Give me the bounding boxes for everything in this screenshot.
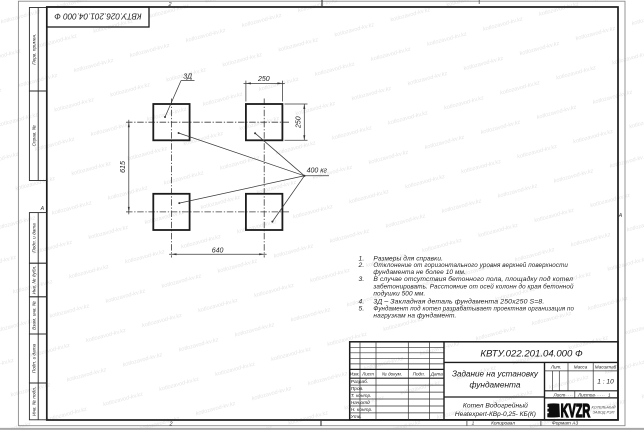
svg-text:Фундамент под котел разрабатыв: Фундамент под котел разрабатывает проект… [373,304,574,312]
svg-text:Подп.: Подп. [413,372,425,377]
svg-text:Взам. инв. №: Взам. инв. № [32,301,37,330]
svg-text:Формат А3: Формат А3 [552,421,579,427]
svg-text:Копировал: Копировал [491,421,515,427]
svg-text:1: 1 [472,421,475,427]
svg-text:А: А [618,213,623,219]
svg-text:Масса: Масса [574,365,588,370]
svg-text:КВТУ.022.201.04.000 Ф: КВТУ.022.201.04.000 Ф [480,348,583,359]
svg-text:Листов: Листов [577,392,595,397]
svg-text:Подп. и дата: Подп. и дата [32,223,37,253]
svg-text:Подп. и дата: Подп. и дата [32,343,37,373]
svg-text:400 кг: 400 кг [307,168,328,175]
svg-text:Разраб.: Разраб. [351,379,368,385]
svg-text:3.: 3. [359,276,365,283]
svg-text:ЗАВОД РЭП: ЗАВОД РЭП [593,410,615,414]
svg-text:Лист: Лист [553,392,566,397]
svg-text:3Д: 3Д [183,73,192,80]
svg-text:забетонировать. Расстояние от: забетонировать. Расстояние от осей колон… [372,282,573,290]
svg-text:5.: 5. [359,305,365,312]
svg-text:В случае отсутствия бетонного: В случае отсутствия бетонного пола, площ… [373,275,573,283]
svg-text:250: 250 [257,76,270,83]
svg-text:Heatexpert-КВр-0,25- КБ(К): Heatexpert-КВр-0,25- КБ(К) [455,411,536,418]
svg-text:Масштаб: Масштаб [595,365,617,370]
svg-text:615: 615 [120,161,127,173]
svg-text:4.: 4. [359,298,365,305]
svg-text:640: 640 [212,247,224,254]
svg-text:Т. контр.: Т. контр. [351,393,372,399]
svg-text:Перв. примен.: Перв. примен. [32,34,37,65]
svg-text:250: 250 [295,116,302,129]
svg-text:нагрузкам на фундамент.: нагрузкам на фундамент. [373,311,456,319]
svg-text:2.: 2. [358,262,365,269]
svg-text:Нач.отд: Нач.отд [351,400,370,406]
svg-text:2: 2 [167,2,171,8]
svg-text:KVZR: KVZR [561,400,591,421]
svg-text:2: 2 [168,422,172,428]
svg-text:Котел Водогрейный: Котел Водогрейный [463,402,529,410]
svg-text:КВТУ.026.201.04.000 Ф: КВТУ.026.201.04.000 Ф [54,11,142,20]
svg-text:3Д – Закладная деталь фундамен: 3Д – Закладная деталь фундамента 250х250… [373,297,544,305]
svg-text:Размеры для справки.: Размеры для справки. [373,254,443,262]
svg-text:№ докум.: № докум. [382,372,402,377]
svg-text:Лист: Лист [361,372,374,377]
svg-text:Пров.: Пров. [351,386,364,392]
svg-text:1 : 10: 1 : 10 [597,379,614,386]
svg-text:Задание на установку: Задание на установку [452,370,539,379]
svg-text:1: 1 [608,392,611,397]
svg-text:А: А [40,206,45,212]
svg-text:Н. контр.: Н. контр. [351,407,373,413]
svg-text:Справ. №: Справ. № [32,125,37,146]
svg-text:фундамента не более 10 мм.: фундамента не более 10 мм. [373,268,466,276]
svg-text:фундамента: фундамента [470,380,521,389]
svg-text:Утв.: Утв. [351,414,362,420]
svg-text:подушки 500 мм.: подушки 500 мм. [373,289,425,297]
svg-text:Инв. № дубл.: Инв. № дубл. [32,266,37,295]
svg-text:Дата: Дата [430,372,444,377]
svg-text:КОТЕЛЬНЫЙ: КОТЕЛЬНЫЙ [592,405,616,409]
svg-text:Изм.: Изм. [350,372,360,377]
svg-text:Инв. № подл.: Инв. № подл. [32,387,37,416]
svg-text:Лит.: Лит. [550,365,562,370]
